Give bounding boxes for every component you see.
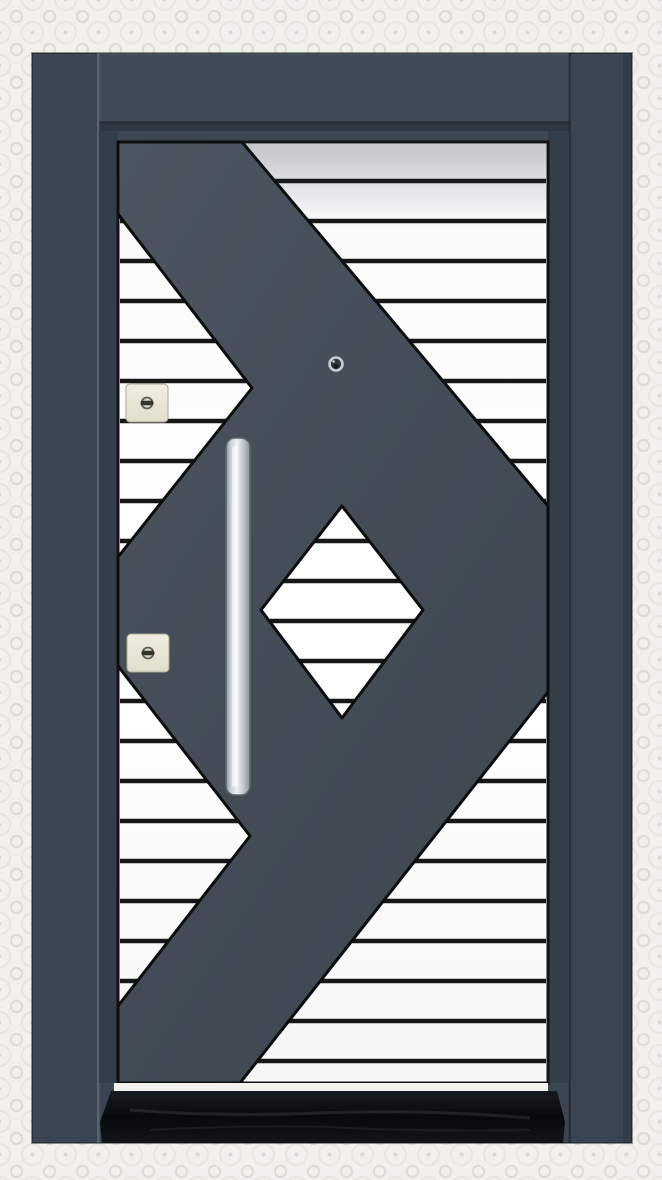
upper-lock-slot: [141, 401, 154, 405]
wallpaper-background: [0, 0, 662, 1180]
leaf-bottom-rail: [114, 1083, 548, 1091]
leaf-left-stile: [99, 131, 118, 1083]
peephole-glint: [332, 360, 334, 362]
lower-lock-slot: [142, 651, 155, 655]
marble-threshold: [100, 1091, 565, 1143]
leaf-right-stile: [548, 131, 569, 1083]
frame-head: [99, 53, 569, 123]
right-jamb-outer-shade: [623, 53, 632, 1143]
pull-handle-sheen: [232, 446, 238, 787]
door-product-photo: [0, 0, 662, 1180]
peephole-lens: [334, 364, 339, 369]
